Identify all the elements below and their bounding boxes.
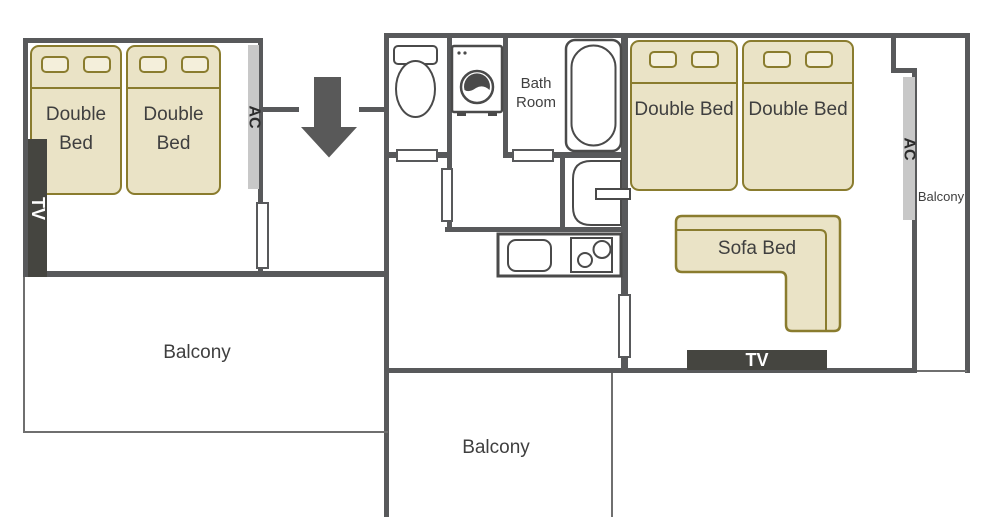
tv-unit-right: TV [687,350,827,370]
floor-plan: Double Bed Double Bed Double Bed Double … [0,0,1000,517]
bathtub [566,40,621,151]
sofa-bed [676,216,840,331]
tv-label: TV [27,196,48,219]
tv-label: TV [745,350,768,371]
balcony-label-right: Balcony [915,188,967,206]
ac-label: AC [245,105,263,128]
kitchen-counter [498,234,621,276]
kitchen-sink [508,240,551,271]
washbasin [573,161,630,225]
washing-machine [452,46,502,116]
toilet [394,46,437,117]
sofa-bed-label: Sofa Bed [687,236,827,262]
balcony-label-left: Balcony [127,340,267,366]
ac-label: AC [900,137,918,160]
ac-unit-left: AC [248,45,259,189]
balcony-label-middle: Balcony [426,435,566,461]
tv-unit-left: TV [28,139,47,277]
entrance-arrow-icon [301,77,357,158]
bathroom-label: Bath Room [503,70,569,116]
ac-unit-right: AC [903,77,915,220]
